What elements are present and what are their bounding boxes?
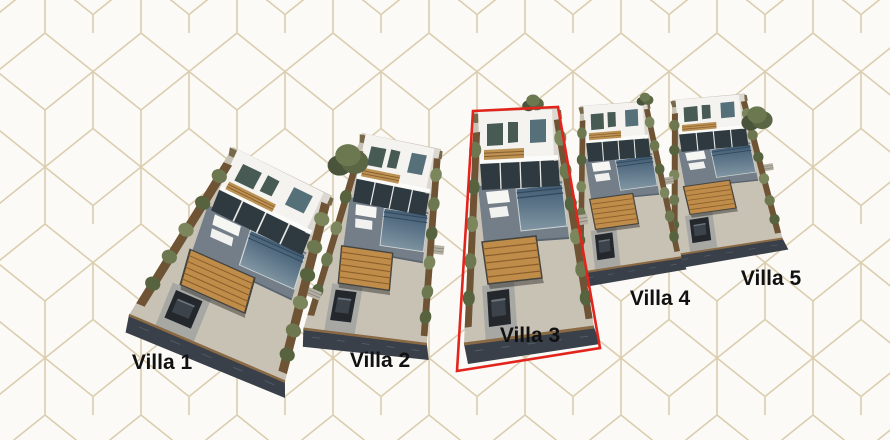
villa-label-1: Villa 1 — [132, 351, 193, 374]
sun-parasol — [489, 206, 509, 218]
wood-slat-band — [484, 148, 524, 160]
house-window — [487, 123, 503, 146]
villa-development-rendering: Villa 1Villa 2Villa 3Villa 4Villa 5 — [0, 0, 890, 440]
scene-svg: Villa 1Villa 2Villa 3Villa 4Villa 5 — [0, 0, 890, 440]
tree-foliage — [335, 144, 361, 166]
tree-foliage — [526, 95, 540, 107]
villa-label-4: Villa 4 — [630, 287, 691, 310]
bush — [466, 216, 478, 232]
swimming-pool — [516, 184, 567, 231]
villa-label-3: Villa 3 — [500, 324, 560, 347]
tree-foliage — [747, 106, 767, 123]
house-window — [702, 105, 711, 120]
villa-label-2: Villa 2 — [350, 349, 410, 372]
house-window — [684, 106, 699, 122]
house-window — [720, 101, 735, 118]
house-window — [607, 112, 616, 127]
house-window — [508, 122, 518, 143]
bush — [463, 290, 475, 306]
house-window — [530, 119, 546, 143]
bush — [464, 253, 476, 269]
sun-lounger — [486, 190, 510, 204]
tree-foliage — [640, 93, 651, 102]
villa-label-5: Villa 5 — [741, 267, 802, 290]
house-window — [591, 113, 604, 130]
house-window — [625, 109, 638, 127]
